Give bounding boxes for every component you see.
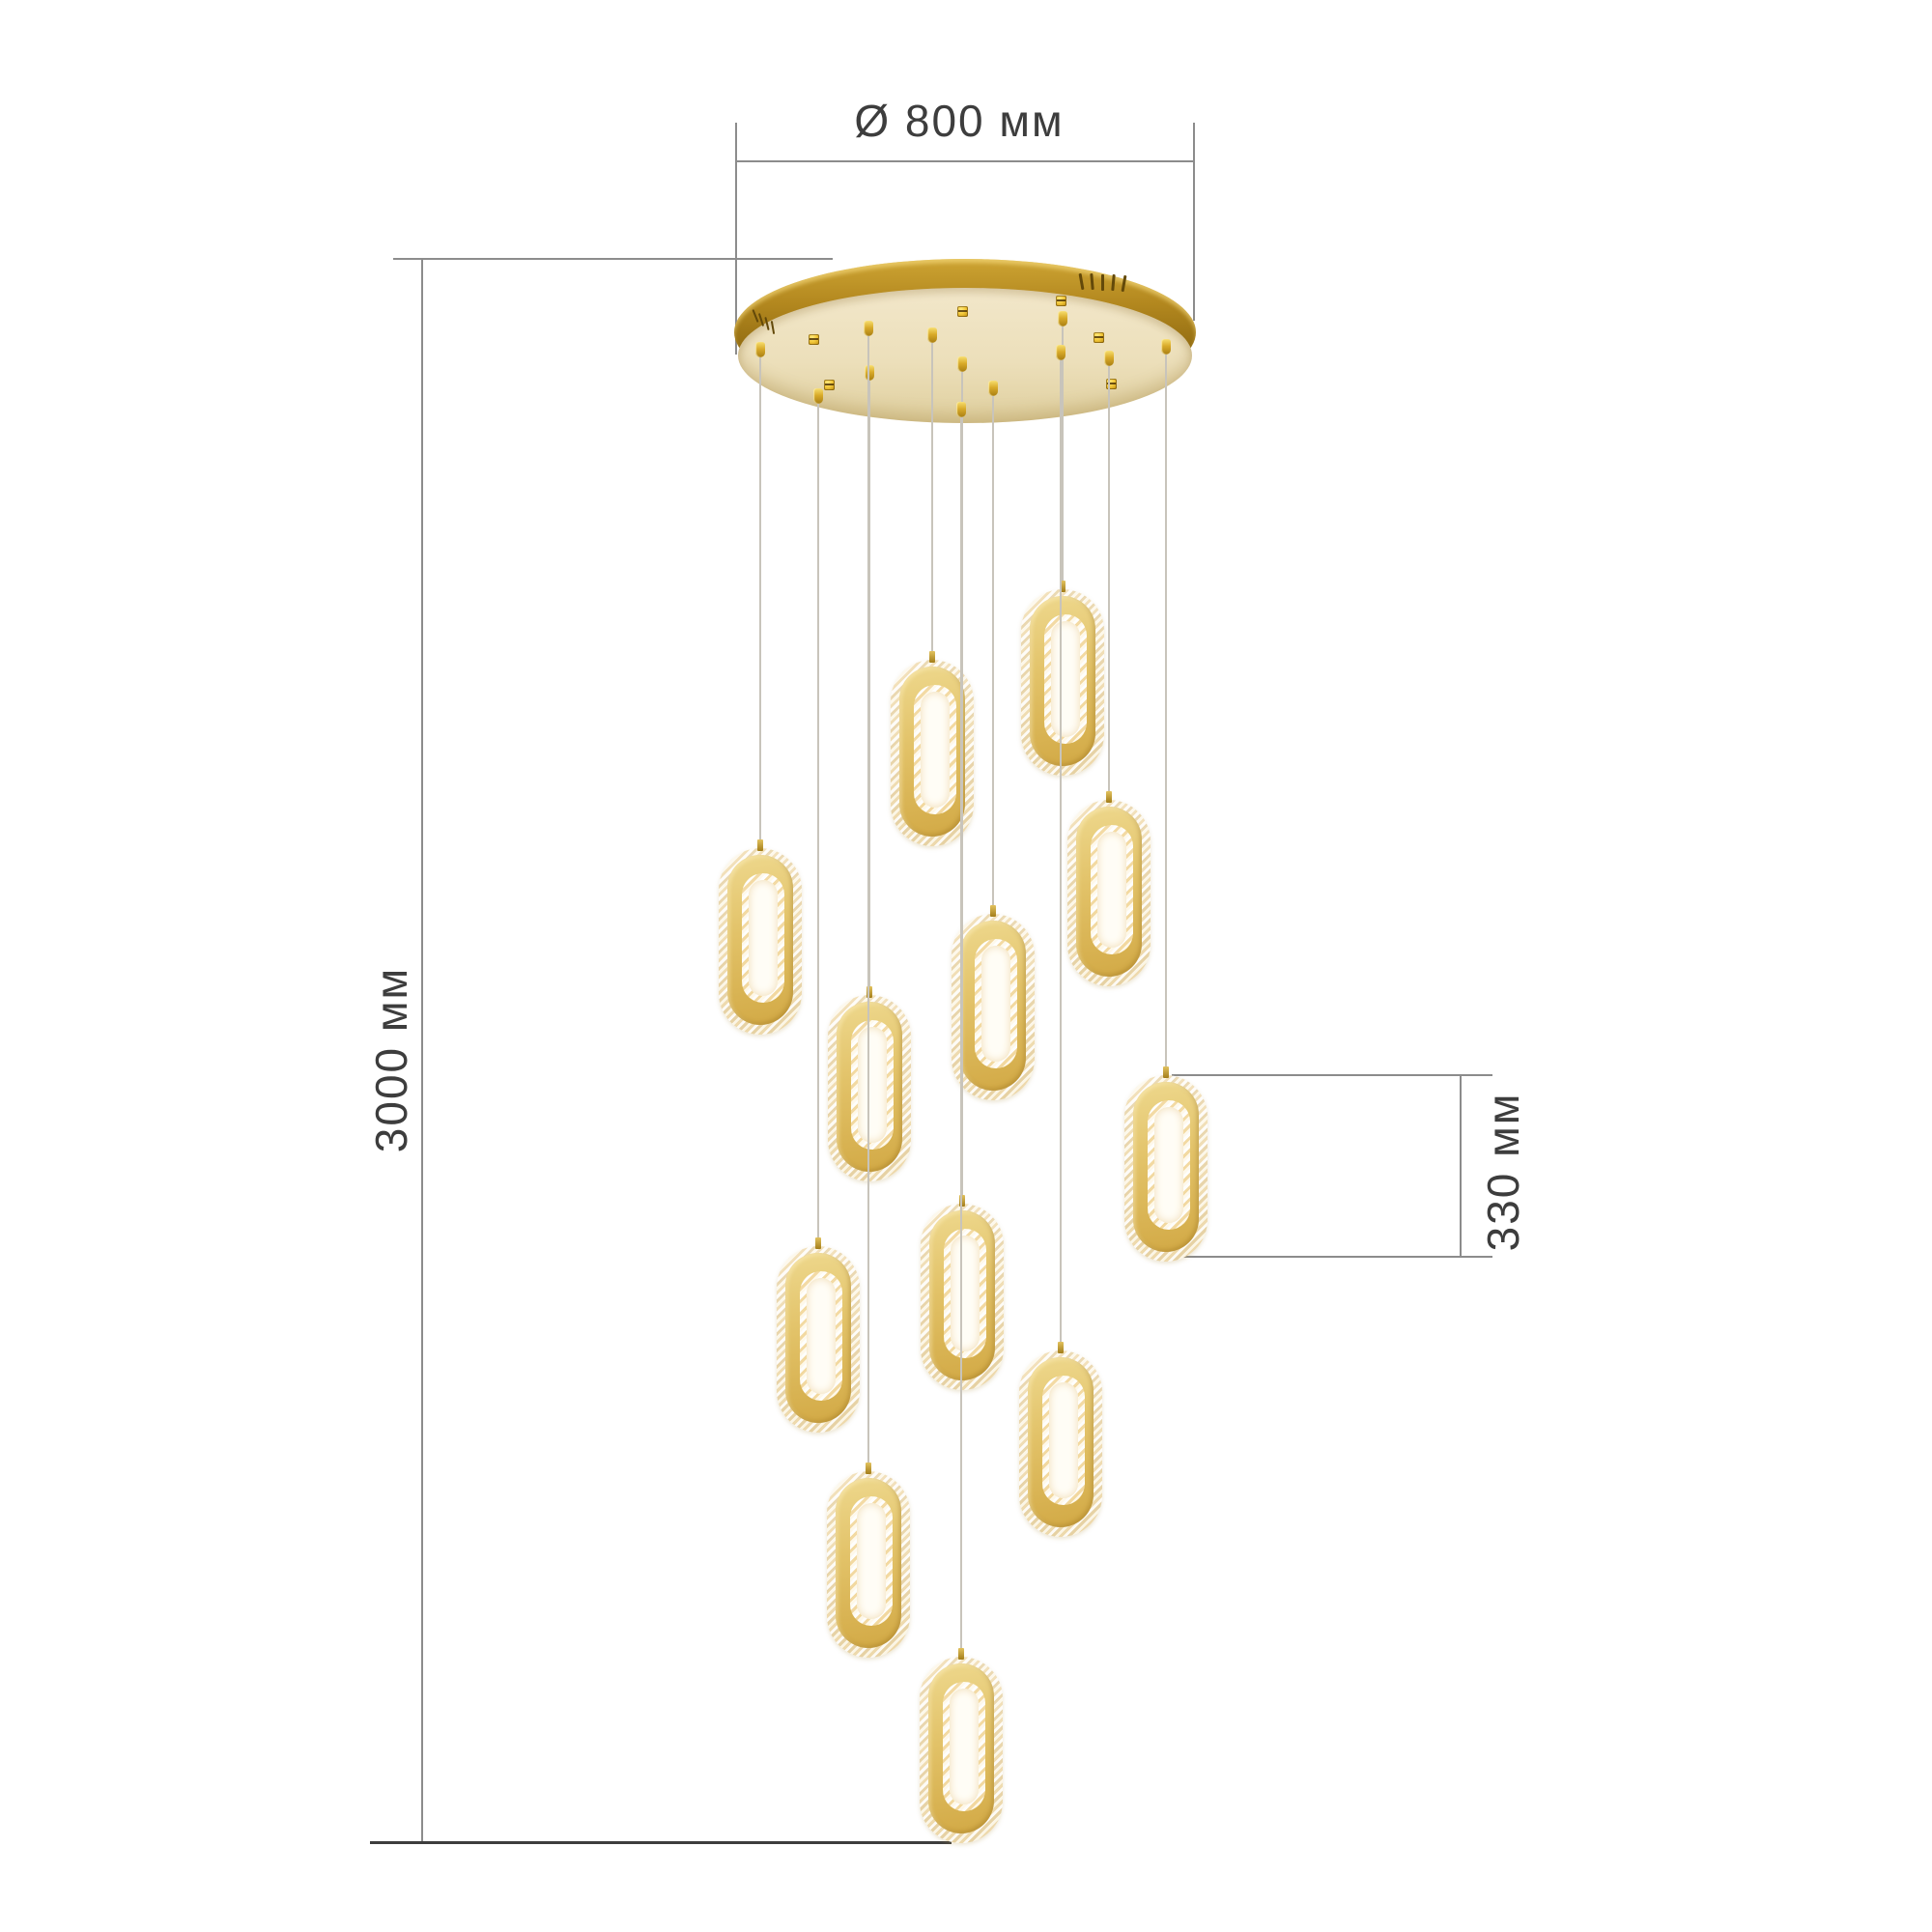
pendant-light <box>920 1657 1003 1843</box>
pendant-light <box>828 995 911 1181</box>
pendant-gold-frame <box>785 1253 851 1423</box>
pendant-light-opening <box>1097 832 1126 948</box>
pendant-gold-frame <box>1028 1357 1094 1527</box>
pendant-crystal-ring <box>850 1496 893 1626</box>
pendant-light-opening <box>807 1278 836 1394</box>
mounting-stud <box>809 334 819 345</box>
pendant-gold-frame <box>837 1002 902 1172</box>
pendant-crystal-ring <box>944 1229 986 1358</box>
pendant-light-opening <box>950 1689 979 1804</box>
vent-slit <box>1101 274 1104 291</box>
pendant-connector-pin <box>1106 791 1112 803</box>
pendant-crystal-ring <box>1044 614 1087 744</box>
mounting-stud <box>1094 332 1104 343</box>
cable-fitting <box>864 321 873 336</box>
pendant-gold-frame <box>899 667 965 837</box>
cable-fitting <box>1056 345 1065 360</box>
pendant-gold-frame <box>1076 807 1142 977</box>
pendant-height-dimension-label: 330 мм <box>1477 1046 1529 1297</box>
suspension-cable <box>931 335 933 651</box>
suspension-cable <box>817 396 819 1237</box>
pendant-light <box>1067 800 1151 986</box>
suspension-cable <box>1165 347 1167 1066</box>
pendant-light-opening <box>1051 621 1080 737</box>
pendant-crystal-ring <box>975 939 1017 1068</box>
pendant-crystal-ring <box>943 1682 985 1811</box>
mounting-stud <box>1056 296 1066 306</box>
pendant-crystal-ring <box>742 873 784 1003</box>
mounting-stud <box>957 306 968 317</box>
pendant-crystal-ring <box>1042 1376 1085 1505</box>
suspension-cable <box>759 350 761 839</box>
suspension-cable <box>867 328 869 1463</box>
pendant-connector-pin <box>990 905 996 917</box>
pendant-gold-frame <box>1030 596 1095 766</box>
height-dimension-label: 3000 мм <box>365 915 417 1205</box>
cable-fitting <box>1104 351 1114 366</box>
pendant-light-opening <box>749 880 778 996</box>
pendant-light <box>1019 1350 1102 1537</box>
pendant-gold-frame <box>928 1663 994 1833</box>
pendant-light <box>777 1246 860 1433</box>
mounting-stud <box>824 380 835 390</box>
height-reference-line-bottom <box>370 1841 952 1844</box>
pendant-light <box>1021 589 1104 776</box>
pendant-gold-frame <box>960 921 1026 1091</box>
height-dimension-line <box>421 258 423 1843</box>
pendant-light-opening <box>921 692 950 808</box>
suspension-cable <box>992 388 994 905</box>
diameter-extension-line-right <box>1193 123 1195 321</box>
pendant-light <box>952 914 1035 1100</box>
cable-fitting <box>1058 311 1067 327</box>
pendant-height-line-top <box>1172 1074 1492 1076</box>
cable-fitting <box>957 356 967 372</box>
pendant-light <box>719 848 802 1035</box>
pendant-crystal-ring <box>1091 825 1133 954</box>
cable-fitting <box>1161 339 1171 355</box>
pendant-light-opening <box>857 1503 886 1619</box>
pendant-gold-frame <box>727 855 793 1025</box>
pendant-connector-pin <box>1058 1342 1064 1353</box>
suspension-cable <box>1060 353 1062 1342</box>
pendant-height-line-bottom <box>1164 1256 1492 1258</box>
pendant-gold-frame <box>836 1478 901 1648</box>
pendant-connector-pin <box>1163 1066 1169 1078</box>
pendant-light <box>921 1204 1004 1390</box>
pendant-gold-frame <box>1133 1082 1199 1252</box>
suspension-cable <box>1108 358 1110 791</box>
pendant-connector-pin <box>757 839 763 851</box>
pendant-light-opening <box>1049 1382 1078 1498</box>
pendant-crystal-ring <box>1148 1100 1190 1230</box>
pendant-crystal-ring <box>851 1020 894 1150</box>
cable-fitting <box>988 381 998 396</box>
pendant-light-opening <box>1154 1107 1183 1223</box>
diameter-dimension-line <box>736 160 1195 162</box>
chandelier-dimension-diagram: Ø 800 мм 3000 мм 330 мм <box>0 0 1932 1932</box>
pendant-crystal-ring <box>914 685 956 814</box>
cable-fitting <box>755 342 765 357</box>
cable-fitting <box>813 388 823 404</box>
height-reference-line-top <box>393 258 833 260</box>
pendant-height-dimension-line <box>1460 1074 1462 1258</box>
suspension-cable <box>960 410 962 1648</box>
pendant-gold-frame <box>929 1210 995 1380</box>
cable-fitting <box>927 327 937 343</box>
pendant-crystal-ring <box>800 1271 842 1401</box>
cable-fitting <box>956 402 966 417</box>
pendant-light-opening <box>981 946 1010 1062</box>
pendant-connector-pin <box>815 1237 821 1249</box>
pendant-light-opening <box>858 1027 887 1143</box>
pendant-light <box>827 1471 910 1658</box>
pendant-light <box>1124 1075 1207 1262</box>
pendant-connector-pin <box>866 1463 871 1474</box>
pendant-connector-pin <box>958 1648 964 1660</box>
pendant-connector-pin <box>929 651 935 663</box>
pendant-light-opening <box>951 1236 980 1351</box>
cable-fitting <box>865 365 874 381</box>
diameter-dimension-label: Ø 800 мм <box>814 95 1104 147</box>
